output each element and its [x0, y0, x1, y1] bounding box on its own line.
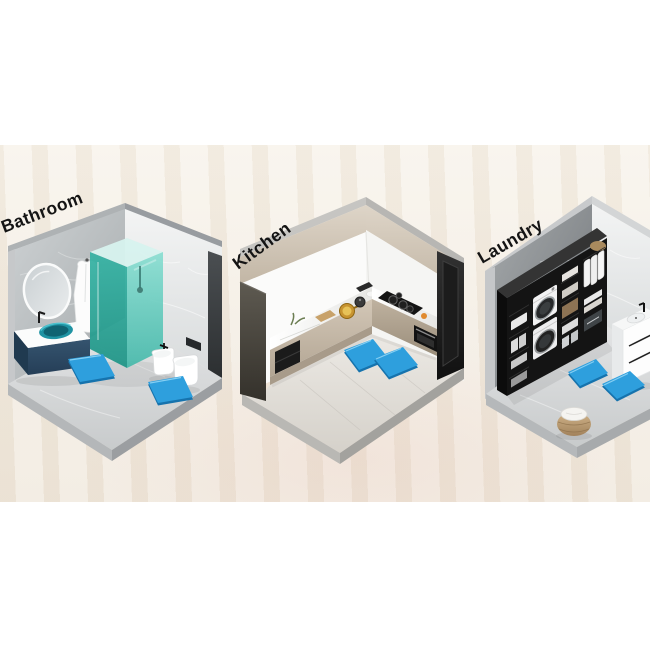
- shower-enclosure: [90, 238, 163, 368]
- bathroom-room: [8, 203, 222, 461]
- laundry-left-wall-edge: [485, 267, 495, 399]
- basket-on-shelf: [590, 241, 606, 251]
- shower-head-face: [137, 287, 143, 293]
- shelf-side: [497, 290, 507, 396]
- shower-glass-left: [90, 252, 127, 368]
- kitchen-cut-wall-left: [240, 282, 266, 401]
- product-showcase-image: Bathroom Kitchen Laundry: [0, 0, 650, 650]
- sink-cabinet-side: [612, 324, 623, 384]
- laundry-basket: [556, 408, 592, 441]
- cooking-pot: [355, 297, 365, 307]
- rooms-illustration: Bathroom Kitchen Laundry: [0, 0, 650, 650]
- kitchen-cut-wall-right: [437, 251, 464, 380]
- juice-glass: [421, 313, 427, 319]
- bathroom-wall-cut-edge: [208, 251, 222, 378]
- bathroom-left-wall-edge: [8, 249, 15, 388]
- basket-cloth: [561, 408, 587, 421]
